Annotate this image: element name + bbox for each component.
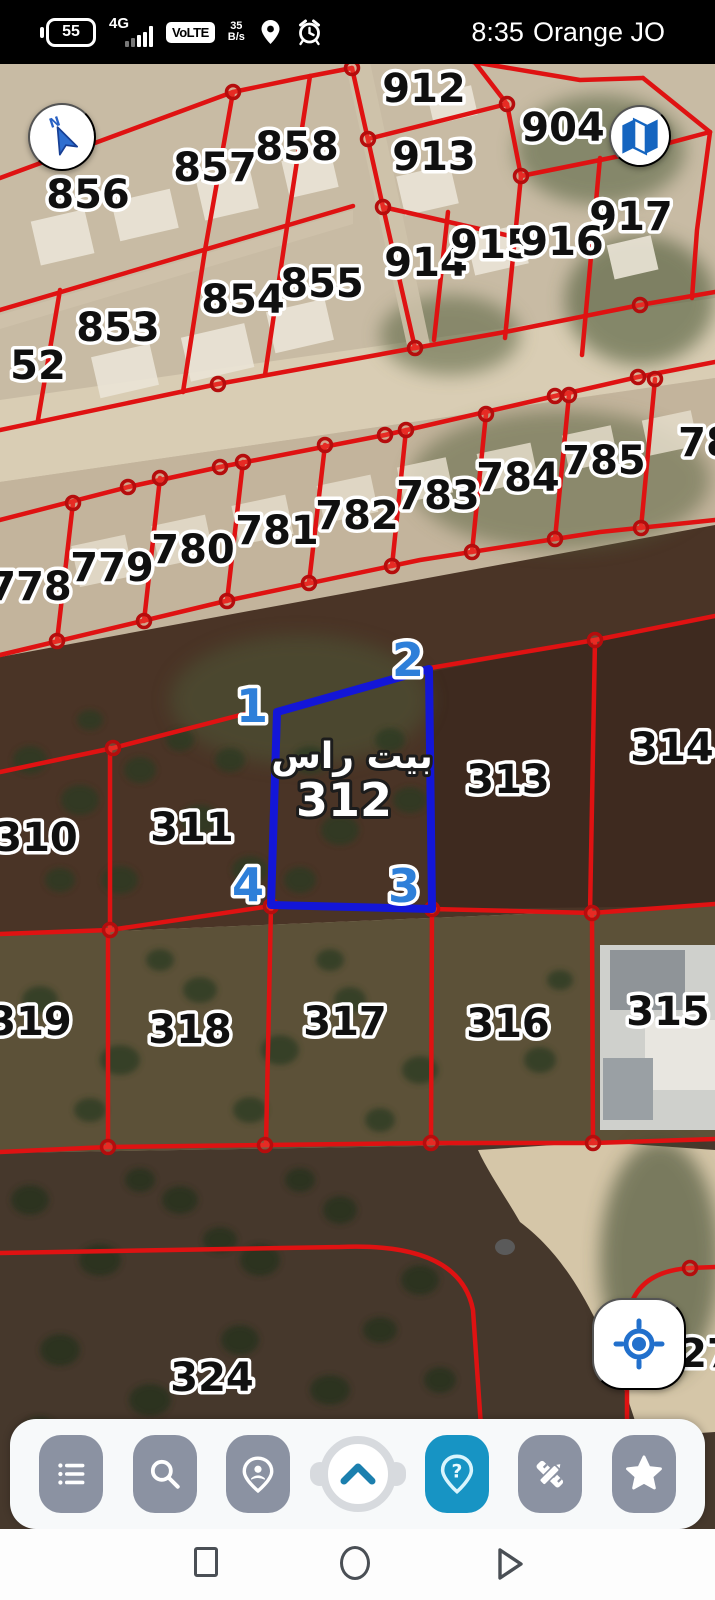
help-pin-button[interactable]: ? [425, 1435, 489, 1513]
status-bar: 55 4G VoLTE 35 B/s [0, 0, 715, 64]
parcel-label: 318 [148, 1007, 232, 1053]
search-icon [147, 1456, 183, 1492]
parcel-label: 857 [173, 145, 257, 191]
parcel-label: 785 [562, 438, 646, 484]
parcel-label: 324 [170, 1355, 254, 1401]
corner-label-3: 3 [388, 859, 420, 913]
search-button[interactable] [133, 1435, 197, 1513]
favorites-star-icon [624, 1454, 664, 1494]
parcel-label: 856 [46, 172, 130, 218]
status-left-cluster: 55 4G VoLTE 35 B/s [40, 17, 323, 47]
compass-icon: N [36, 107, 88, 167]
battery-icon: 55 [40, 18, 96, 47]
help-glyph: ? [451, 1461, 462, 1482]
parcel-label: 78 [678, 420, 715, 466]
map-layers-button[interactable] [609, 105, 671, 167]
parcel-label: 781 [235, 508, 319, 554]
parcel-label: 855 [280, 261, 364, 307]
corner-label-1: 1 [236, 679, 268, 733]
android-nav-bar [0, 1529, 715, 1600]
data-rate: 35 B/s [228, 21, 245, 43]
parcel-label: 317 [303, 999, 387, 1045]
parcel-label: 780 [151, 527, 235, 573]
person-pin-icon [239, 1455, 277, 1493]
parcel-label: 913 [392, 134, 476, 180]
collapse-toolbar-handle[interactable] [320, 1436, 396, 1512]
signal-icon: 4G [109, 17, 153, 47]
alarm-clock-icon [296, 18, 323, 46]
home-button[interactable] [340, 1546, 370, 1580]
parcel-label: 778 [0, 564, 72, 610]
help-pin-icon: ? [437, 1453, 477, 1495]
map-layers-icon [618, 116, 662, 156]
corner-label-4: 4 [232, 858, 264, 912]
phone-screen: 55 4G VoLTE 35 B/s [0, 0, 715, 1600]
parcel-label: 316 [466, 1001, 550, 1047]
recents-button[interactable] [194, 1547, 218, 1577]
parcel-label: 783 [396, 473, 480, 519]
parcel-label: 912 [382, 66, 466, 112]
parcel-label: 784 [476, 455, 560, 501]
parcel-label: 319 [0, 999, 72, 1045]
menu-list-icon [53, 1456, 89, 1492]
corner-label-2: 2 [392, 633, 424, 687]
parcel-label: 854 [201, 277, 285, 323]
parcel-label: 779 [70, 545, 154, 591]
parcel-label: 52 [10, 343, 66, 389]
carrier: Orange JO [533, 17, 665, 48]
building-315 [600, 945, 715, 1130]
highlight-name-arabic: بيت راس [271, 736, 433, 777]
tools-button[interactable] [518, 1435, 582, 1513]
parcel-label: 858 [255, 124, 339, 170]
back-button[interactable] [492, 1546, 526, 1585]
volte-badge: VoLTE [166, 22, 215, 43]
location-pin-icon [258, 18, 283, 46]
parcel-label: 314 [630, 725, 714, 771]
parcel-label: 904 [521, 105, 605, 151]
highlight-parcel-number: 312 [296, 773, 392, 827]
person-pin-button[interactable] [226, 1435, 290, 1513]
clock: 8:35 [471, 17, 524, 48]
my-location-icon [613, 1318, 665, 1370]
status-right-cluster: 8:35 Orange JO [471, 17, 665, 48]
my-location-button[interactable] [592, 1298, 686, 1390]
battery-percent: 55 [46, 18, 96, 47]
parcel-label: 311 [150, 805, 234, 851]
tools-icon [531, 1455, 569, 1493]
compass-button[interactable]: N [28, 103, 96, 171]
parcel-label: 782 [315, 493, 399, 539]
parcel-label: 853 [76, 305, 160, 351]
parcel-label: 315 [626, 989, 710, 1035]
collapse-chevron-icon [330, 1454, 386, 1494]
back-triangle-icon [492, 1546, 526, 1582]
menu-list-button[interactable] [39, 1435, 103, 1513]
favorites-star-button[interactable] [612, 1435, 676, 1513]
bottom-toolbar: ? [10, 1419, 705, 1529]
map-viewport[interactable]: 856 857 858 912 913 904 917 914 915 916 … [0, 0, 715, 1600]
parcel-label: 916 [520, 219, 604, 265]
parcel-label: 313 [466, 757, 550, 803]
parcel-label: 310 [0, 815, 78, 861]
